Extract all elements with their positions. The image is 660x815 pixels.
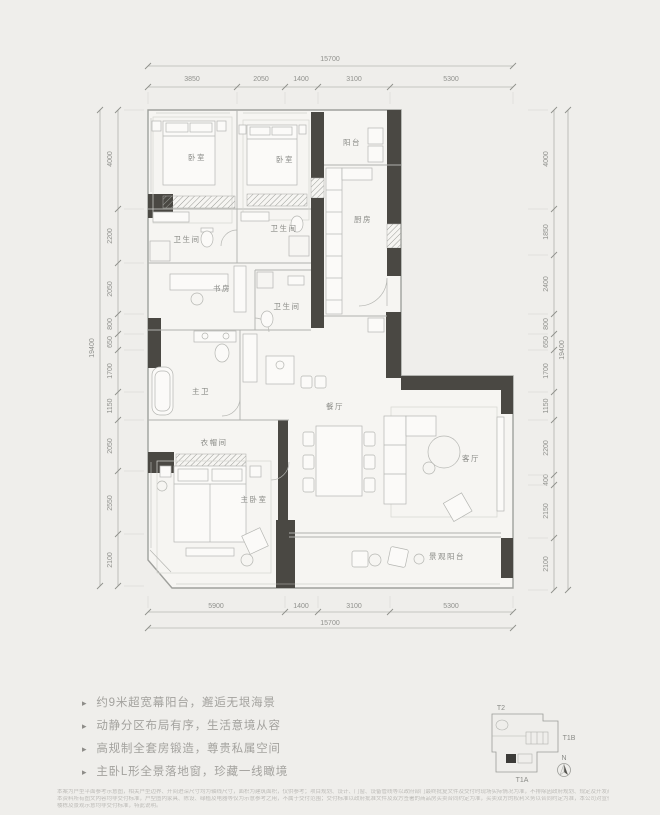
- feature-text: 动静分区布局有序，生活意境从容: [96, 717, 281, 733]
- feature-list: ▸ 约9米超宽幕阳台，邂逅无垠海景 ▸ 动静分区布局有序，生活意境从容 ▸ 高规…: [82, 694, 288, 786]
- dim: 1150: [107, 398, 114, 413]
- disclaimer: 本案为户型平面参考示意图，相关户型边界、开间进深尺寸均为轴线尺寸，面积为建筑面积…: [57, 789, 609, 810]
- key-plan: T2 T1B T1A N: [452, 688, 602, 788]
- dim: 1700: [107, 363, 114, 379]
- dim-total-bottom: 15700: [320, 620, 340, 627]
- floorplan-page: 卧室 卧室 阳台 厨房 卫生间 卫生间 书房 卫生间 主卫 餐厅 衣帽间 主卧室…: [0, 0, 660, 815]
- dim: 5300: [443, 603, 459, 610]
- room-label: 客厅: [462, 453, 480, 463]
- bullet-icon: ▸: [82, 767, 87, 778]
- dim: 2150: [543, 503, 550, 519]
- dim: 2400: [543, 276, 550, 292]
- dim-total-left: 19400: [89, 338, 96, 358]
- room-label: 阳台: [343, 137, 361, 147]
- room-label: 卧室: [276, 154, 294, 164]
- dim: 3100: [346, 76, 362, 83]
- feature-item: ▸ 约9米超宽幕阳台，邂逅无垠海景: [82, 694, 288, 717]
- dim: 650: [107, 336, 114, 348]
- feature-item: ▸ 动静分区布局有序，生活意境从容: [82, 717, 288, 740]
- feature-item: ▸ 高规制全套房锻造，尊贵私属空间: [82, 740, 288, 763]
- dim: 4000: [107, 151, 114, 167]
- dim: 5900: [208, 603, 224, 610]
- dim-chain-bottom: 5900 1400 3100 5300 15700: [145, 596, 516, 631]
- bullet-icon: ▸: [82, 698, 87, 709]
- dim: 5300: [443, 76, 459, 83]
- key-plan-highlight-unit: [506, 754, 516, 763]
- room-label: 景观阳台: [429, 551, 465, 561]
- floor-plan: 卧室 卧室 阳台 厨房 卫生间 卫生间 书房 卫生间 主卫 餐厅 衣帽间 主卧室…: [0, 0, 660, 660]
- dim: 4000: [543, 151, 550, 167]
- dim: 2200: [107, 228, 114, 244]
- dim: 2050: [253, 76, 269, 83]
- key-plan-outline: [492, 714, 558, 772]
- dim: 650: [543, 336, 550, 348]
- room-label: 卫生间: [271, 223, 298, 233]
- room-label: 卫生间: [174, 234, 201, 244]
- dim-chain-left: 19400 4000 2200 2050 800 650 1700 1150 2…: [89, 107, 144, 589]
- dim: 2200: [543, 440, 550, 456]
- dim: 2050: [107, 438, 114, 454]
- north-compass-icon: N: [558, 755, 571, 777]
- feature-text: 主卧L形全景落地窗，珍藏一线瞰境: [96, 763, 288, 779]
- key-plan-label-t1a: T1A: [516, 777, 529, 784]
- dim: 800: [543, 318, 550, 330]
- key-plan-label-t2: T2: [497, 705, 505, 712]
- bullet-icon: ▸: [82, 721, 87, 732]
- disclaimer-line: 本资料所有图文内容均非交付标准，户型图内家具、陈设、绿植及电器等仅为示意参考之用…: [57, 796, 609, 803]
- dim: 1400: [293, 76, 309, 83]
- dim-total-top: 15700: [320, 56, 340, 63]
- feature-text: 高规制全套房锻造，尊贵私属空间: [96, 740, 281, 756]
- dim: 1700: [543, 363, 550, 379]
- room-label: 书房: [213, 283, 231, 293]
- dim-chain-right: 19400 4000 1850 2400 800 650 1700 1150 2…: [528, 107, 571, 593]
- north-label: N: [561, 755, 566, 762]
- key-plan-label-t1b: T1B: [563, 735, 576, 742]
- dim: 2100: [107, 552, 114, 568]
- dim-chain-top: 15700 3850 2050 1400 3100 5300: [145, 56, 516, 104]
- room-label: 衣帽间: [201, 437, 228, 447]
- room-label: 餐厅: [326, 402, 344, 411]
- disclaimer-line: 楼栋及景观示意均非交付标准，特此说明。: [57, 803, 609, 810]
- room-label: 主卫: [192, 386, 210, 396]
- room-label: 卫生间: [274, 301, 301, 311]
- dim: 2100: [543, 556, 550, 572]
- disclaimer-line: 本案为户型平面参考示意图，相关户型边界、开间进深尺寸均为轴线尺寸，面积为建筑面积…: [57, 789, 609, 796]
- dim: 2050: [107, 281, 114, 297]
- dim: 800: [107, 318, 114, 330]
- dim: 3850: [184, 76, 200, 83]
- feature-text: 约9米超宽幕阳台，邂逅无垠海景: [96, 694, 275, 710]
- dim: 2550: [107, 495, 114, 511]
- feature-item: ▸ 主卧L形全景落地窗，珍藏一线瞰境: [82, 763, 288, 786]
- dim: 400: [543, 474, 550, 486]
- bullet-icon: ▸: [82, 744, 87, 755]
- dim: 1150: [543, 398, 550, 413]
- dim: 3100: [346, 603, 362, 610]
- room-label: 厨房: [354, 214, 372, 224]
- dim: 1850: [543, 224, 550, 240]
- dim: 1400: [293, 603, 309, 610]
- dim-total-right: 19400: [559, 340, 566, 360]
- room-label: 主卧室: [241, 494, 268, 504]
- room-label: 卧室: [188, 152, 206, 162]
